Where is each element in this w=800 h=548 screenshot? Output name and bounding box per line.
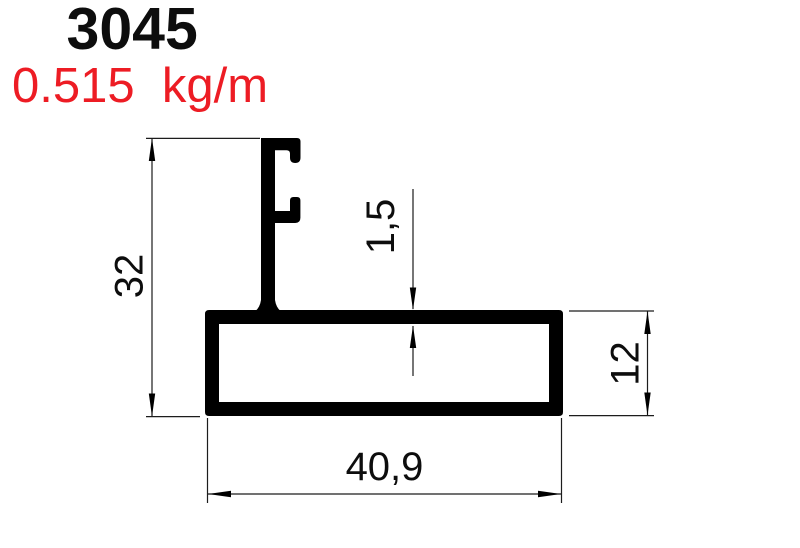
svg-text:12: 12	[604, 341, 648, 386]
svg-text:3045: 3045	[67, 0, 198, 62]
svg-text:40,9: 40,9	[346, 445, 424, 489]
svg-text:32: 32	[108, 254, 152, 299]
svg-text:1,5: 1,5	[359, 199, 403, 255]
svg-text:0.515 kg/m: 0.515 kg/m	[12, 59, 268, 113]
